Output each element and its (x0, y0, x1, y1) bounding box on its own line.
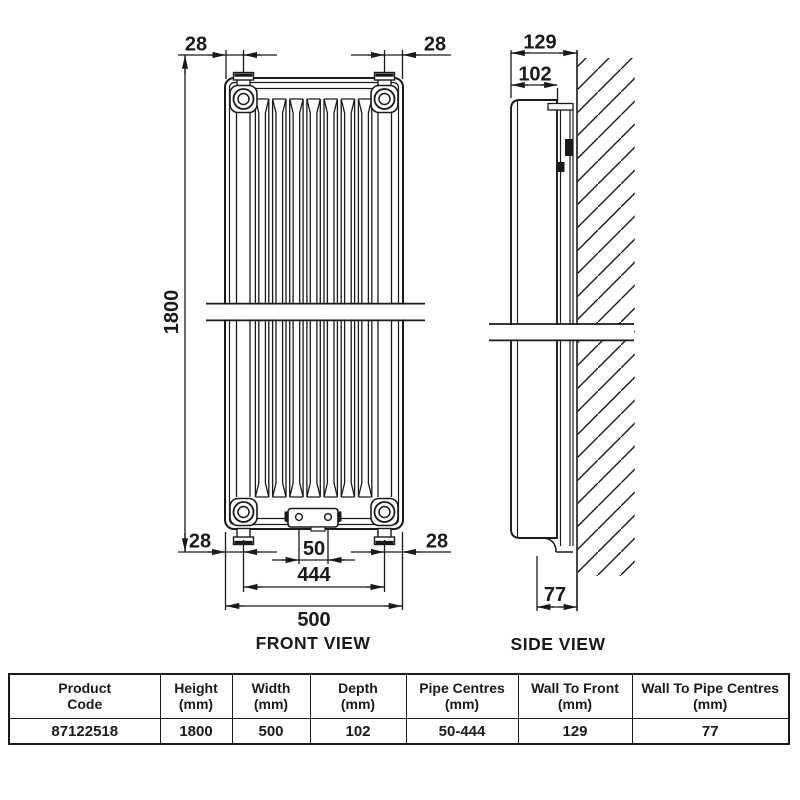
header-pipe-centres: Pipe Centres(mm) (406, 674, 518, 719)
technical-drawing: 28 28 1800 28 28 50 444 500 129 102 77 F… (0, 0, 800, 672)
pipe-elbow-side (543, 538, 573, 552)
dim-top-left-label: 28 (185, 34, 207, 56)
dim-pipe-centres-min-label: 50 (303, 538, 325, 560)
spec-table-header-row: ProductCode Height(mm) Width(mm) Depth(m… (9, 674, 789, 719)
dim-top-right-label: 28 (424, 34, 446, 56)
side-view-caption: SIDE VIEW (511, 634, 606, 654)
valve-boss-bottom-right (371, 499, 398, 526)
value-width: 500 (232, 719, 310, 745)
header-height: Height(mm) (160, 674, 232, 719)
break-line-side (489, 324, 634, 340)
dim-bottom-right-label: 28 (426, 531, 448, 553)
header-depth: Depth(mm) (310, 674, 406, 719)
dim-width-label: 500 (297, 609, 330, 631)
value-product-code: 87122518 (9, 719, 160, 745)
value-wall-to-front: 129 (518, 719, 632, 745)
header-width: Width(mm) (232, 674, 310, 719)
valve-boss-bottom-left (230, 499, 257, 526)
header-wall-to-front: Wall To Front(mm) (518, 674, 632, 719)
front-view-caption: FRONT VIEW (256, 633, 371, 653)
dim-bottom-left-label: 28 (189, 531, 211, 553)
dim-depth-label: 102 (518, 64, 551, 86)
dim-height-label: 1800 (161, 290, 183, 335)
value-pipe-centres: 50-444 (406, 719, 518, 745)
spec-table: ProductCode Height(mm) Width(mm) Depth(m… (8, 673, 790, 745)
valve-boss-top-left (230, 86, 257, 113)
value-wall-to-pipe-centres: 77 (632, 719, 789, 745)
wall-hatch (578, 58, 635, 576)
spec-table-data-row: 87122518 1800 500 102 50-444 129 77 (9, 719, 789, 745)
valve-boss-top-right (371, 86, 398, 113)
header-wall-to-pipe-centres: Wall To Pipe Centres(mm) (632, 674, 789, 719)
dim-pipe-centres-max-label: 444 (297, 564, 331, 586)
centre-pipe-bracket (285, 509, 342, 532)
radiator-dimension-diagram: 28 28 1800 28 28 50 444 500 129 102 77 F… (0, 0, 800, 800)
dim-wall-to-pipe-label: 77 (544, 584, 566, 606)
break-line-front (206, 304, 425, 321)
value-height: 1800 (160, 719, 232, 745)
dim-wall-to-front-label: 129 (523, 32, 556, 54)
value-depth: 102 (310, 719, 406, 745)
header-product-code: ProductCode (9, 674, 160, 719)
